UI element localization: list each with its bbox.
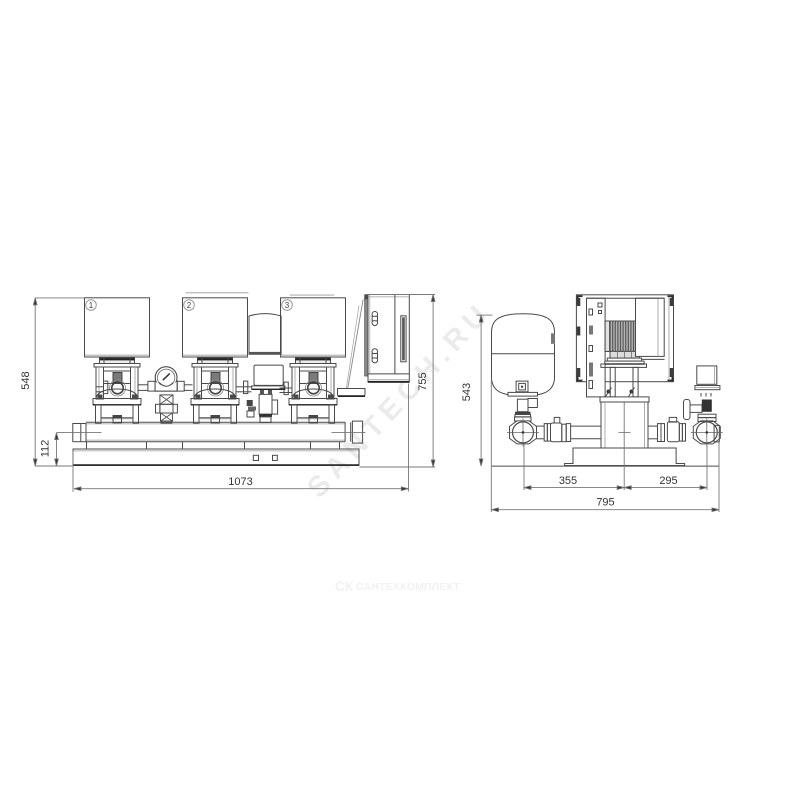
svg-text:548: 548 [20, 371, 32, 389]
svg-text:355: 355 [559, 475, 577, 487]
svg-text:295: 295 [659, 475, 677, 487]
svg-text:СК: СК [335, 579, 354, 594]
svg-text:1073: 1073 [228, 476, 252, 488]
svg-text:2: 2 [187, 301, 192, 310]
svg-text:3: 3 [285, 301, 290, 310]
svg-text:755: 755 [417, 372, 429, 390]
svg-text:795: 795 [596, 497, 614, 509]
svg-text:112: 112 [40, 440, 52, 458]
svg-text:543: 543 [461, 383, 473, 401]
svg-text:САНТЕХКОМПЛЕКТ: САНТЕХКОМПЛЕКТ [356, 581, 460, 593]
svg-text:1: 1 [89, 301, 94, 310]
